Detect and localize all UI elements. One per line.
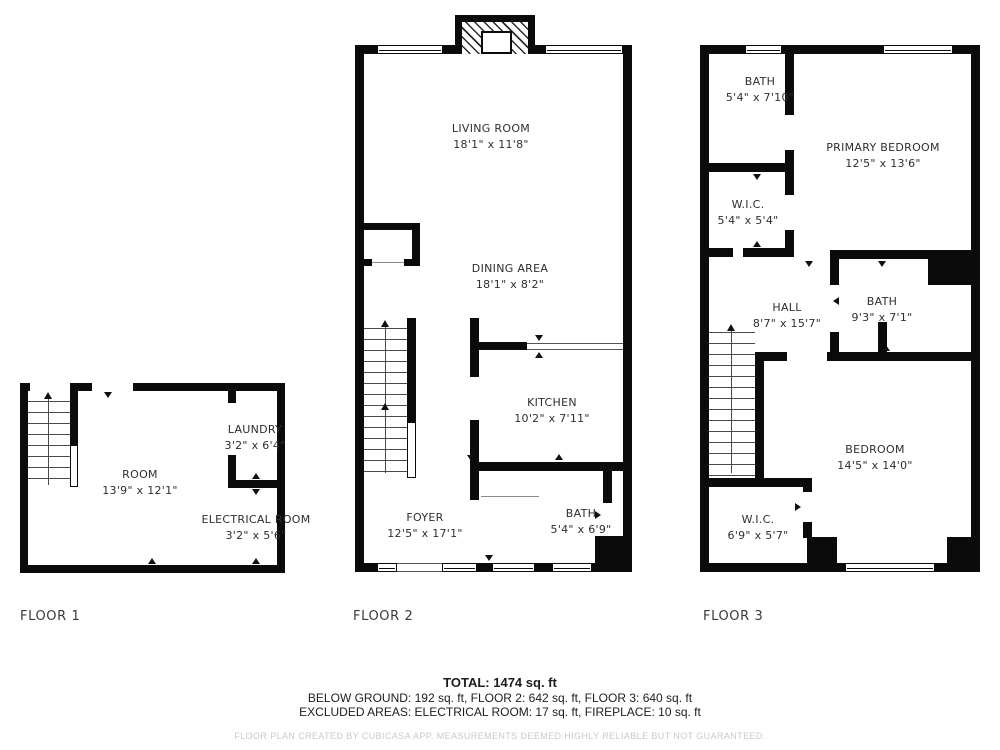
room-label: W.I.C. 6'9" x 5'7" <box>728 512 789 543</box>
wall <box>709 478 803 487</box>
wall <box>935 563 980 572</box>
floor-2-plan: LIVING ROOM 18'1" x 11'8" DINING AREA 18… <box>355 15 632 572</box>
door-marker <box>148 558 156 564</box>
door-line <box>372 262 404 263</box>
room-label: BEDROOM 14'5" x 14'0" <box>837 442 913 473</box>
room-label: BATH 5'4" x 7'10" <box>726 74 794 105</box>
room-dims: 12'5" x 17'1" <box>387 526 463 542</box>
window <box>883 45 953 54</box>
room-name: LIVING ROOM <box>452 121 530 137</box>
wall <box>228 383 236 403</box>
room-name: DINING AREA <box>472 261 548 277</box>
room-dims: 18'1" x 11'8" <box>452 137 530 153</box>
wall <box>803 522 812 538</box>
window <box>845 563 935 572</box>
room-dims: 10'2" x 7'11" <box>514 411 590 427</box>
floor-areas: BELOW GROUND: 192 sq. ft, FLOOR 2: 642 s… <box>0 691 1000 706</box>
room-dims: 18'1" x 8'2" <box>472 277 548 293</box>
door-marker <box>882 345 890 351</box>
wall <box>443 45 455 54</box>
wall <box>953 45 980 54</box>
room-label: BATH 9'3" x 7'1" <box>852 294 913 325</box>
door-marker <box>485 555 493 561</box>
wall <box>20 565 285 573</box>
room-dims: 5'4" x 7'10" <box>726 90 794 106</box>
wall <box>803 478 812 492</box>
room-label: KITCHEN 10'2" x 7'11" <box>514 395 590 426</box>
room-dims: 6'9" x 5'7" <box>728 528 789 544</box>
fixture-block <box>595 536 632 566</box>
room-name: W.I.C. <box>728 512 789 528</box>
wall <box>407 318 416 422</box>
wall <box>535 563 552 572</box>
wall <box>700 45 745 54</box>
staircase <box>28 391 70 487</box>
wall <box>70 383 78 445</box>
door-marker <box>252 558 260 564</box>
wall <box>755 352 764 487</box>
wall <box>20 383 30 391</box>
room-label: PRIMARY BEDROOM 12'5" x 13'6" <box>826 140 940 171</box>
door-marker <box>555 454 563 460</box>
door-marker <box>467 455 475 461</box>
room-dims: 14'5" x 14'0" <box>837 458 913 474</box>
counter-passthrough <box>527 343 623 350</box>
wall <box>785 150 794 195</box>
wall <box>971 45 980 572</box>
room-name: LAUNDRY <box>225 422 286 438</box>
door-marker <box>753 241 761 247</box>
wall <box>603 468 612 503</box>
room-dims: 5'4" x 5'4" <box>718 213 779 229</box>
window <box>442 563 477 572</box>
room-name: W.I.C. <box>718 197 779 213</box>
door-marker <box>753 174 761 180</box>
room-label: HALL 8'7" x 15'7" <box>753 300 821 331</box>
room-label: LAUNDRY 3'2" x 6'4" <box>225 422 286 453</box>
excluded-areas: EXCLUDED AREAS: ELECTRICAL ROOM: 17 sq. … <box>0 705 1000 720</box>
door-marker <box>878 261 886 267</box>
room-name: ROOM <box>102 467 178 483</box>
room-dims: 5'4" x 6'9" <box>551 522 612 538</box>
room-label: DINING AREA 18'1" x 8'2" <box>472 261 548 292</box>
window <box>552 563 592 572</box>
wall <box>709 248 733 257</box>
room-label: LIVING ROOM 18'1" x 11'8" <box>452 121 530 152</box>
door-marker <box>833 297 839 305</box>
disclaimer-text: FLOOR PLAN CREATED BY CUBICASA APP. MEAS… <box>0 731 1000 741</box>
room-dims: 12'5" x 13'6" <box>826 156 940 172</box>
entry-door-opening <box>397 563 442 572</box>
fixture-block <box>928 256 972 285</box>
room-dims: 8'7" x 15'7" <box>753 316 821 332</box>
stairs-up-arrow <box>44 392 52 399</box>
stair-railing <box>70 445 78 487</box>
staircase-centerline <box>731 329 732 473</box>
staircase <box>709 322 755 478</box>
wall <box>355 45 364 572</box>
door-line <box>481 496 539 497</box>
stairs-up-arrow <box>381 320 389 327</box>
room-dims: 3'2" x 5'6" <box>201 528 310 544</box>
wall <box>535 45 545 54</box>
total-area: TOTAL: 1474 sq. ft <box>0 676 1000 691</box>
staircase-centerline <box>48 397 49 485</box>
window <box>377 563 397 572</box>
room-name: KITCHEN <box>514 395 590 411</box>
stairs-up-arrow <box>727 324 735 331</box>
room-label: BATH 5'4" x 6'9" <box>551 506 612 537</box>
wall <box>827 352 980 361</box>
room-name: HALL <box>753 300 821 316</box>
room-name: PRIMARY BEDROOM <box>826 140 940 156</box>
room-name: BATH <box>852 294 913 310</box>
room-label: ROOM 13'9" x 12'1" <box>102 467 178 498</box>
room-name: BATH <box>551 506 612 522</box>
wall <box>228 480 285 488</box>
door-marker <box>252 473 260 479</box>
room-name: FOYER <box>387 510 463 526</box>
floor-2-caption: FLOOR 2 <box>353 609 413 624</box>
wall <box>133 383 285 391</box>
stair-railing <box>407 422 416 478</box>
door-marker <box>104 392 112 398</box>
fixture-block <box>807 537 837 563</box>
staircase-centerline <box>385 323 386 473</box>
wall <box>623 45 632 572</box>
fireplace-opening <box>481 31 512 54</box>
room-label: ELECTRICAL ROOM 3'2" x 5'6" <box>201 512 310 543</box>
stairs-up-arrow <box>381 403 389 410</box>
floor-1-caption: FLOOR 1 <box>20 609 80 624</box>
room-dims: 13'9" x 12'1" <box>102 483 178 499</box>
wall <box>20 383 28 573</box>
fixture-block <box>947 537 972 563</box>
door-marker <box>535 352 543 358</box>
room-name: BEDROOM <box>837 442 913 458</box>
wall <box>277 383 285 573</box>
room-dims: 3'2" x 6'4" <box>225 438 286 454</box>
door-marker <box>252 489 260 495</box>
floor-plan-page: ROOM 13'9" x 12'1" LAUNDRY 3'2" x 6'4" E… <box>0 0 1000 750</box>
room-name: BATH <box>726 74 794 90</box>
room-label: FOYER 12'5" x 17'1" <box>387 510 463 541</box>
wall <box>782 45 883 54</box>
window <box>545 45 623 54</box>
wall <box>603 537 612 563</box>
wall <box>700 45 709 572</box>
wall <box>743 248 794 257</box>
wall <box>364 259 372 266</box>
wall <box>470 342 527 350</box>
wall <box>355 563 377 572</box>
window <box>492 563 535 572</box>
door-marker <box>805 261 813 267</box>
wall <box>700 563 845 572</box>
wall <box>830 250 839 285</box>
room-dims: 9'3" x 7'1" <box>852 310 913 326</box>
wall <box>355 45 377 54</box>
floor-3-caption: FLOOR 3 <box>703 609 763 624</box>
room-label: W.I.C. 5'4" x 5'4" <box>718 197 779 228</box>
area-summary: TOTAL: 1474 sq. ft BELOW GROUND: 192 sq.… <box>0 676 1000 720</box>
wall <box>709 163 794 172</box>
window <box>745 45 782 54</box>
wall <box>404 259 420 266</box>
room-name: ELECTRICAL ROOM <box>201 512 310 528</box>
door-marker <box>795 503 801 511</box>
floor-1-plan: ROOM 13'9" x 12'1" LAUNDRY 3'2" x 6'4" E… <box>20 383 285 573</box>
window <box>377 45 443 54</box>
door-marker <box>535 335 543 341</box>
floor-3-plan: BATH 5'4" x 7'10" PRIMARY BEDROOM 12'5" … <box>700 45 980 572</box>
wall <box>477 563 492 572</box>
